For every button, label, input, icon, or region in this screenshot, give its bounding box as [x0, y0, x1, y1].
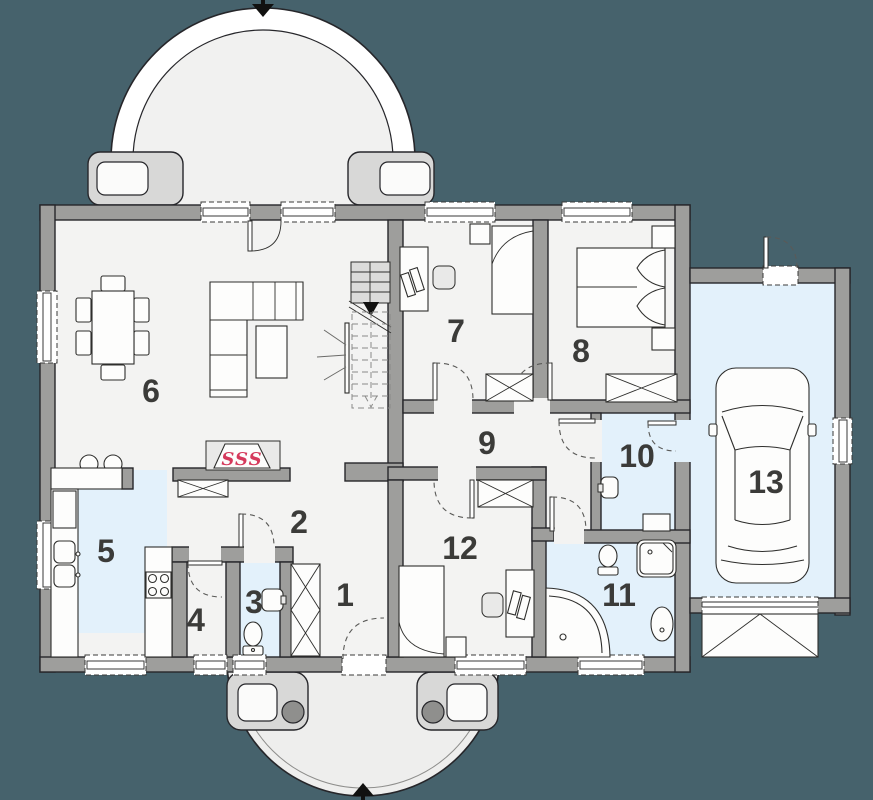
- room-label-8: 8: [572, 333, 590, 369]
- room-label-11: 11: [602, 577, 636, 613]
- nightstand: [470, 224, 490, 244]
- window: [37, 291, 57, 363]
- toilet-icon: [243, 622, 263, 655]
- room-label-13: 13: [748, 464, 784, 500]
- room-label-7: 7: [447, 313, 465, 349]
- wardrobe-icon: [291, 564, 320, 656]
- toilet-icon: [598, 545, 618, 575]
- double-bed-icon: [577, 248, 665, 327]
- room-label-10: 10: [619, 438, 655, 474]
- top-bay-pillar-left: [88, 152, 183, 205]
- fireplace: SSS: [206, 441, 280, 470]
- sink-icon: [262, 589, 286, 611]
- sink-icon: [651, 607, 673, 641]
- cabinet: [643, 514, 670, 531]
- window: [85, 655, 146, 675]
- top-bay-pillar-right: [348, 152, 434, 205]
- sink-icon: [598, 477, 618, 498]
- nightstand: [446, 637, 466, 657]
- bed-icon: [399, 566, 444, 657]
- entry-door-opening: [342, 655, 386, 675]
- fireplace-symbol: SSS: [221, 449, 262, 470]
- nightstand: [652, 226, 675, 248]
- room-label-4: 4: [187, 602, 205, 638]
- room-label-5: 5: [97, 533, 115, 569]
- garage-side-door-opening: [763, 266, 798, 285]
- room-label-2: 2: [290, 504, 308, 540]
- wardrobe-icon: [606, 374, 677, 402]
- window: [833, 418, 852, 464]
- window: [233, 655, 266, 675]
- wardrobe-icon: [486, 374, 533, 401]
- window: [562, 202, 632, 222]
- wardrobe-icon: [178, 480, 228, 497]
- garage-door: [702, 597, 818, 657]
- room-label-3: 3: [245, 584, 263, 620]
- floor-plan: SSS: [0, 0, 873, 800]
- porch-pillar-right: [417, 672, 498, 730]
- room-label-1: 1: [336, 577, 354, 613]
- window: [578, 655, 644, 675]
- room-label-6: 6: [142, 373, 160, 409]
- window: [425, 202, 495, 222]
- room-label-9: 9: [478, 425, 496, 461]
- wardrobe-icon: [478, 480, 533, 507]
- nightstand: [652, 328, 675, 350]
- window: [455, 655, 526, 675]
- porch-pillar-left: [227, 672, 308, 730]
- window: [281, 202, 335, 222]
- stove-icon: [146, 572, 171, 598]
- coffee-table: [256, 326, 287, 378]
- bed-icon: [492, 226, 533, 314]
- window: [194, 655, 227, 675]
- shower-icon: [637, 540, 676, 577]
- room-label-12: 12: [442, 530, 478, 566]
- window: [201, 202, 250, 222]
